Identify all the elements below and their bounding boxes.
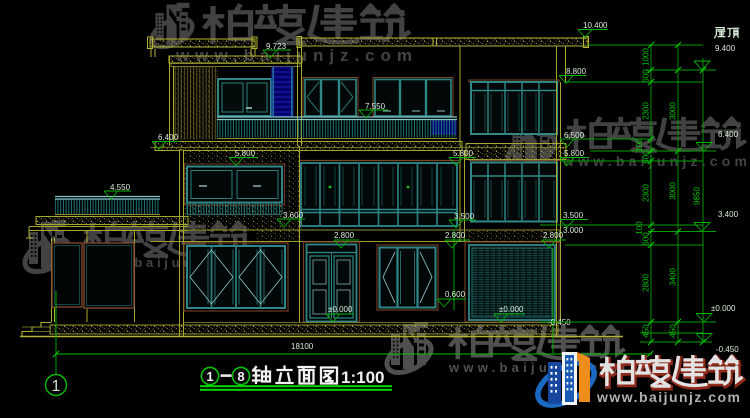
svg-text:2.800: 2.800 [543,231,564,240]
svg-text:1000: 1000 [642,48,651,66]
svg-text:www.baijunjz.com: www.baijunjz.com [596,389,740,405]
svg-text:0.600: 0.600 [445,290,466,299]
svg-text:3000: 3000 [669,102,678,120]
svg-text:8.800: 8.800 [566,67,587,76]
svg-text:2300: 2300 [642,184,651,202]
svg-text:2800: 2800 [642,274,651,292]
svg-text:600: 600 [642,69,651,83]
svg-text:-0.450: -0.450 [548,318,571,327]
svg-text:1: 1 [52,378,61,395]
svg-text:3400: 3400 [669,268,678,286]
svg-text:1:100: 1:100 [341,368,384,387]
svg-text:±0.000: ±0.000 [711,304,736,313]
svg-text:±0.000: ±0.000 [499,305,524,314]
svg-text:600: 600 [642,232,651,246]
svg-text:5.800: 5.800 [235,149,256,158]
svg-text:3.000: 3.000 [563,226,584,235]
svg-text:10.400: 10.400 [583,21,608,30]
svg-text:6.400: 6.400 [718,130,739,139]
svg-text:600: 600 [642,150,651,164]
svg-text:8: 8 [237,369,244,384]
svg-text:9.400: 9.400 [715,44,736,53]
svg-text:18100: 18100 [291,342,314,351]
svg-text:2300: 2300 [642,102,651,120]
svg-text:7.550: 7.550 [365,102,386,111]
svg-text:9.723: 9.723 [266,42,287,51]
svg-text:-0.450: -0.450 [716,345,739,354]
svg-text:2.800: 2.800 [445,231,466,240]
svg-text:3000: 3000 [669,182,678,200]
svg-text:3.600: 3.600 [283,211,304,220]
svg-text:3.500: 3.500 [563,211,584,220]
svg-text:2.800: 2.800 [334,231,355,240]
svg-text:6.400: 6.400 [158,133,179,142]
svg-text:5.800: 5.800 [564,149,585,158]
svg-text:1: 1 [206,369,213,384]
svg-text:3.400: 3.400 [718,210,739,219]
svg-text:5.800: 5.800 [453,149,474,158]
svg-text:9850: 9850 [693,187,702,205]
svg-text:4.550: 4.550 [110,183,131,192]
svg-text:3.500: 3.500 [454,212,475,221]
svg-text:450: 450 [642,324,651,338]
svg-text:±0.000: ±0.000 [328,305,353,314]
svg-text:100: 100 [635,138,644,152]
svg-text:450: 450 [669,324,678,338]
